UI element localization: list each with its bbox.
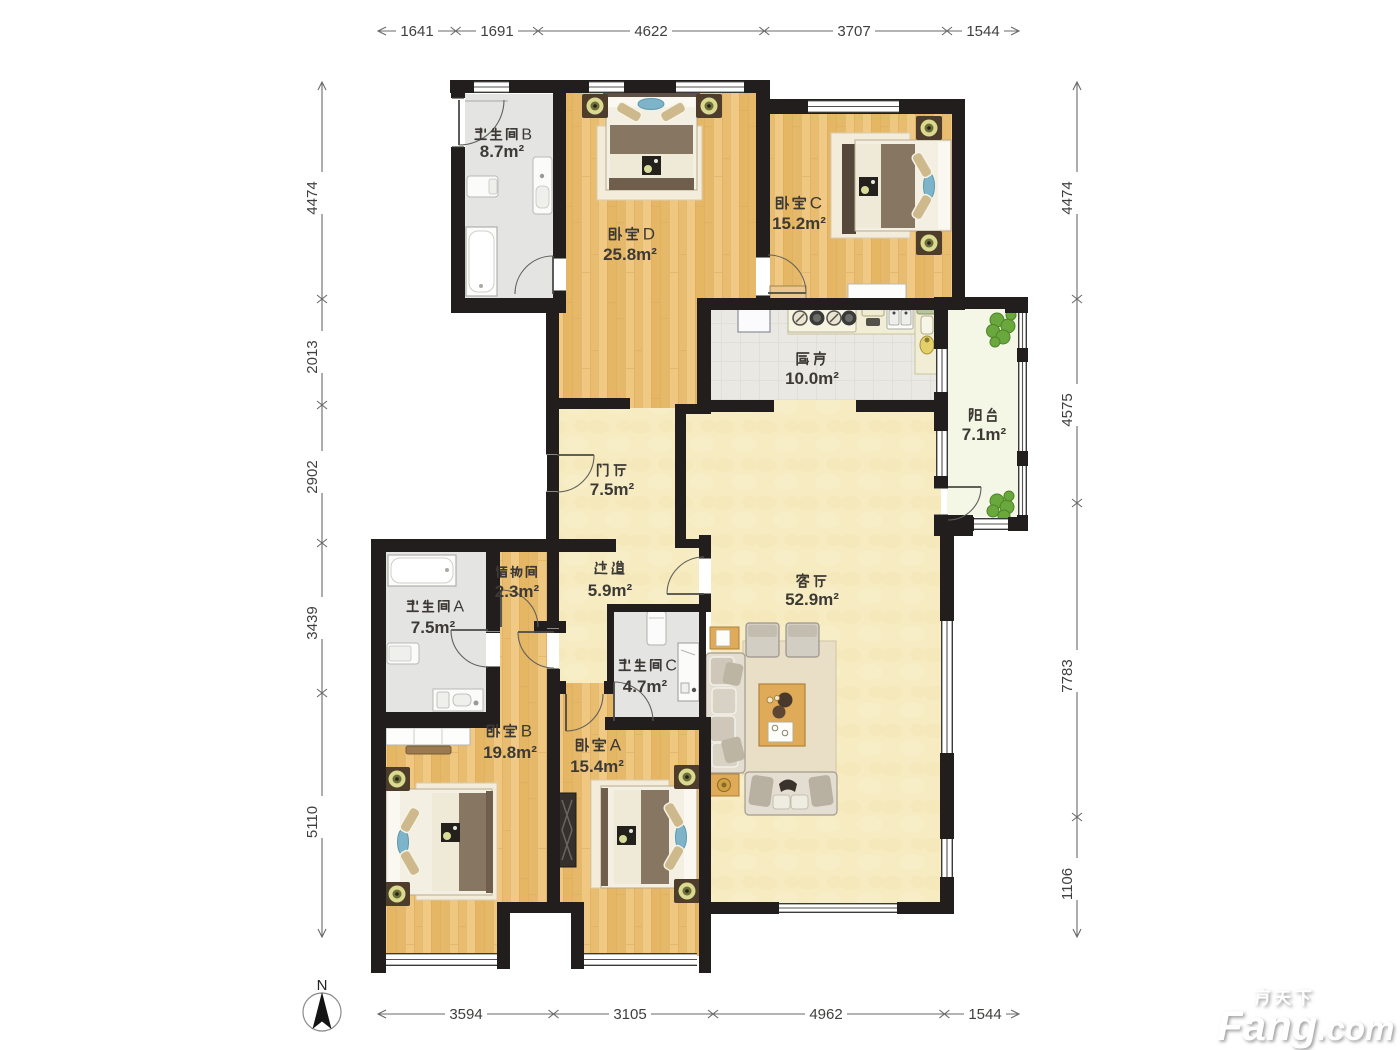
svg-text:3594: 3594	[449, 1006, 482, 1023]
svg-text:1691: 1691	[480, 23, 513, 40]
svg-text:4575: 4575	[1059, 393, 1076, 426]
svg-text:3707: 3707	[837, 23, 870, 40]
svg-text:A: A	[610, 736, 622, 755]
svg-text:5.9m²: 5.9m²	[588, 581, 633, 600]
svg-text:B: B	[521, 722, 532, 741]
svg-text:1106: 1106	[1059, 868, 1076, 900]
svg-text:4.7m²: 4.7m²	[623, 677, 668, 696]
svg-text:1544: 1544	[966, 23, 999, 40]
svg-text:1544: 1544	[968, 1006, 1001, 1023]
svg-text:C: C	[810, 194, 822, 213]
svg-text:3105: 3105	[613, 1006, 646, 1023]
svg-text:52.9m²: 52.9m²	[785, 590, 839, 609]
svg-text:4622: 4622	[634, 23, 667, 40]
svg-text:4962: 4962	[809, 1006, 842, 1023]
svg-text:19.8m²: 19.8m²	[483, 743, 537, 762]
svg-text:2902: 2902	[304, 460, 321, 493]
svg-text:N: N	[317, 977, 328, 994]
svg-text:Fang.com: Fang.com	[1217, 1002, 1394, 1049]
svg-text:2.3m²: 2.3m²	[495, 582, 540, 601]
svg-text:7783: 7783	[1059, 659, 1076, 692]
svg-text:5110: 5110	[304, 806, 321, 838]
svg-text:25.8m²: 25.8m²	[603, 245, 657, 264]
svg-text:1641: 1641	[400, 23, 433, 40]
svg-text:3439: 3439	[304, 606, 321, 639]
svg-text:7.5m²: 7.5m²	[590, 480, 635, 499]
svg-text:7.1m²: 7.1m²	[962, 425, 1007, 444]
svg-text:B: B	[521, 126, 532, 143]
svg-text:4474: 4474	[1059, 181, 1076, 214]
svg-text:2013: 2013	[304, 340, 321, 373]
svg-text:C: C	[665, 657, 677, 674]
svg-text:7.5m²: 7.5m²	[411, 618, 456, 637]
svg-text:A: A	[453, 598, 464, 615]
svg-text:15.2m²: 15.2m²	[772, 214, 826, 233]
svg-text:D: D	[643, 225, 655, 244]
svg-text:15.4m²: 15.4m²	[570, 757, 624, 776]
svg-text:4474: 4474	[304, 181, 321, 214]
svg-text:8.7m²: 8.7m²	[480, 142, 525, 161]
svg-text:10.0m²: 10.0m²	[785, 369, 839, 388]
